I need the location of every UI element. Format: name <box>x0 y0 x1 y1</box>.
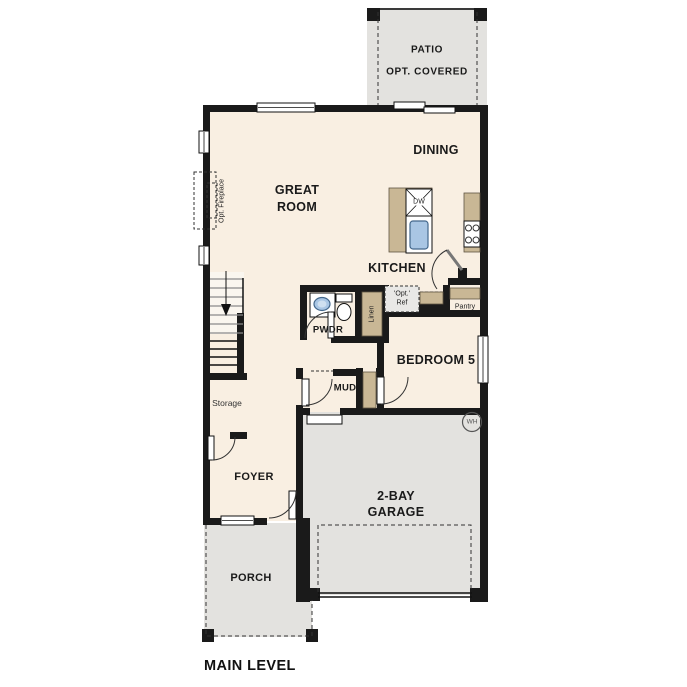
dining-label: DINING <box>413 143 459 157</box>
garage-door-pillar <box>303 588 320 601</box>
plan-caption: MAIN LEVEL <box>204 658 296 674</box>
garage-floor <box>303 412 484 595</box>
floor-plan-drawing <box>0 0 687 687</box>
toilet-bowl <box>337 304 351 321</box>
great-room-label-1: GREAT <box>275 183 319 197</box>
bedroom5-door <box>377 377 384 404</box>
kitchen-label: KITCHEN <box>368 261 426 275</box>
garage-entry-step <box>307 415 342 424</box>
patio-slider-panel <box>394 102 425 109</box>
floor-areas <box>204 8 487 637</box>
porch-label: PORCH <box>230 572 271 584</box>
bedroom5-label: BEDROOM 5 <box>397 353 475 367</box>
opt-ref-label-2: Ref <box>397 300 408 307</box>
patio-post <box>474 8 487 21</box>
powder-label: PWDR <box>313 325 343 336</box>
garage-door-pillar <box>470 588 488 602</box>
dishwasher-label: DW <box>412 199 426 206</box>
mud-label: MUD <box>334 383 357 394</box>
pantry-label: Pantry <box>455 304 475 311</box>
kitchen-sink <box>410 221 428 249</box>
linen-label: Linen <box>369 305 376 322</box>
garage-label-1: 2-BAY <box>377 489 415 503</box>
patio-label: PATIO <box>411 45 443 56</box>
foyer-label: FOYER <box>234 471 273 483</box>
garage-label-2: GARAGE <box>368 505 425 519</box>
floor-plan: PATIO OPT. COVERED DINING GREAT ROOM KIT… <box>0 0 687 687</box>
opt-ref-label-1: 'Opt.' <box>394 291 410 298</box>
storage-label: Storage <box>212 398 242 408</box>
great-room-label-2: ROOM <box>277 200 317 214</box>
pantry-shelf <box>450 288 480 299</box>
mud-door <box>302 379 309 406</box>
toilet-tank <box>336 294 352 302</box>
storage-door <box>208 436 214 460</box>
opt-fireplace-label: Opt. Fireplace <box>219 179 226 223</box>
water-heater-label: WH <box>467 419 478 426</box>
powder-sink-bowl <box>318 301 327 308</box>
patio-opt-label: OPT. COVERED <box>386 67 468 78</box>
patio-floor <box>367 8 487 107</box>
patio-slider-panel <box>424 107 455 113</box>
counter <box>420 292 443 304</box>
mud-closet <box>363 372 376 408</box>
